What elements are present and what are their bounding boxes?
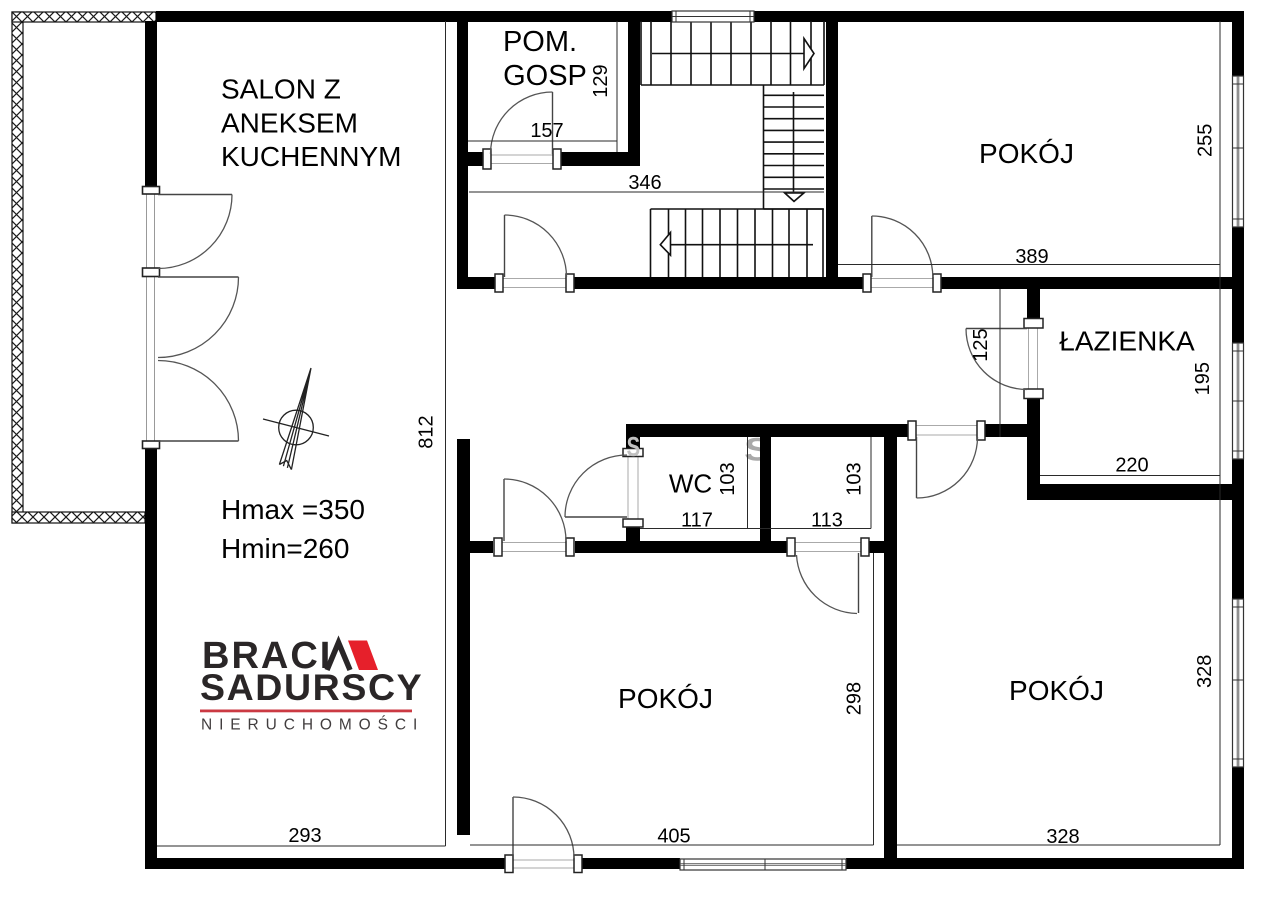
svg-text:KUCHENNYM: KUCHENNYM [221,141,401,172]
svg-text:157: 157 [530,120,563,142]
svg-text:SALON Z: SALON Z [221,74,341,105]
svg-text:SADURSCY: SADURSCY [200,666,423,708]
svg-text:POKÓJ: POKÓJ [979,138,1074,169]
svg-text:ANEKSEM: ANEKSEM [221,108,358,139]
svg-text:220: 220 [1115,455,1148,477]
svg-text:ŁAZIENKA: ŁAZIENKA [1059,326,1195,357]
svg-text:POKÓJ: POKÓJ [1009,675,1104,706]
svg-text:812: 812 [416,415,438,448]
svg-text:346: 346 [628,172,661,194]
svg-text:NIERUCHOMOŚCI: NIERUCHOMOŚCI [201,716,424,734]
svg-text:405: 405 [657,826,690,848]
svg-text:129: 129 [590,64,612,97]
svg-text:GOSP: GOSP [503,60,587,92]
svg-text:125: 125 [970,328,992,361]
svg-text:113: 113 [811,510,843,532]
svg-text:103: 103 [844,462,866,495]
svg-text:WC: WC [669,469,712,499]
svg-text:103: 103 [717,462,739,495]
svg-text:328: 328 [1194,655,1216,688]
svg-text:389: 389 [1015,246,1048,268]
svg-text:Hmax =350: Hmax =350 [221,494,365,525]
svg-text:POKÓJ: POKÓJ [618,683,713,714]
svg-text:S: S [627,432,640,463]
svg-text:328: 328 [1046,826,1079,848]
svg-text:195: 195 [1192,362,1214,395]
svg-text:117: 117 [681,510,713,532]
svg-text:298: 298 [844,682,866,715]
svg-text:Hmin=260: Hmin=260 [221,533,349,564]
svg-text:255: 255 [1195,124,1217,157]
svg-text:293: 293 [288,825,321,847]
svg-text:POM.: POM. [503,26,577,58]
